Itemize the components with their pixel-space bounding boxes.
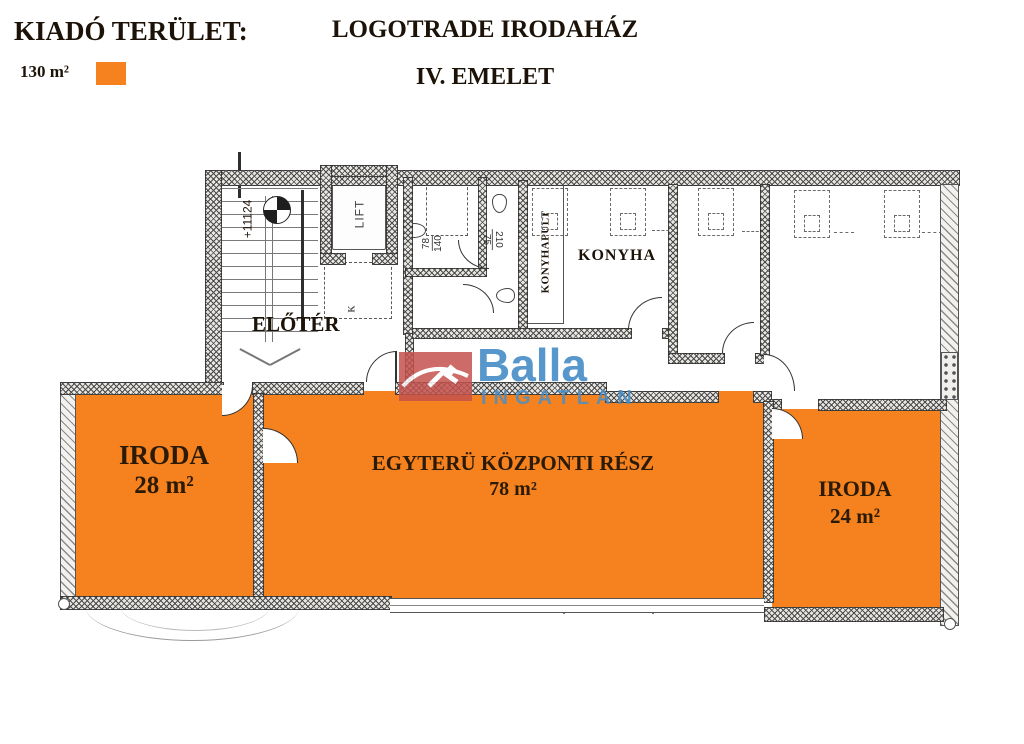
lift-label: LIFT bbox=[352, 200, 366, 229]
lift-lobby-dashed bbox=[324, 262, 392, 319]
room-label-central: EGYTERÜ KÖZPONTI RÉSZ 78 m² bbox=[298, 446, 728, 506]
wall-mid-horizontal bbox=[668, 353, 725, 364]
toilet-icon bbox=[492, 194, 507, 213]
wall-right-insulation bbox=[941, 352, 958, 400]
wall-room-divider-upper bbox=[760, 184, 770, 356]
stair-arrow bbox=[240, 348, 271, 365]
dim-value: 210 bbox=[492, 229, 504, 250]
wall-wc-horizontal bbox=[405, 268, 487, 277]
wall-stair-left bbox=[205, 170, 222, 394]
desk-icon bbox=[698, 188, 734, 236]
column-icon bbox=[58, 598, 70, 610]
level-marker-icon bbox=[263, 196, 291, 224]
stair-section-line bbox=[301, 190, 304, 330]
room-label-iroda28: IRODA 28 m² bbox=[84, 432, 244, 508]
lift-wall-right bbox=[386, 165, 398, 265]
room-area: 28 m² bbox=[134, 471, 194, 501]
furniture-dash bbox=[922, 232, 942, 233]
floor-title: IV. EMELET bbox=[285, 64, 685, 91]
lift-wall-bottom-left bbox=[320, 253, 346, 265]
dim-value: 78 bbox=[421, 236, 433, 251]
stair-mark-label: K bbox=[347, 305, 357, 312]
wc-dimensions: 78 140 bbox=[421, 235, 444, 252]
wall-orange-top-1 bbox=[60, 382, 224, 395]
closet-dashed bbox=[426, 182, 468, 236]
wall-left bbox=[60, 382, 76, 609]
wall-wc-right bbox=[518, 180, 528, 334]
brand-logo-icon bbox=[399, 352, 472, 401]
desk-icon bbox=[610, 188, 646, 236]
door-arc-kitchen bbox=[628, 297, 662, 330]
wall-kitchen-right bbox=[668, 184, 678, 364]
wall-top bbox=[205, 170, 960, 186]
door-arc-entry bbox=[366, 351, 397, 382]
wall-iroda24-top-b bbox=[818, 399, 947, 411]
room-name: IRODA bbox=[818, 475, 891, 503]
stair-arrow bbox=[270, 348, 301, 365]
wall-divider-iroda28 bbox=[253, 393, 264, 599]
window-band-bottom bbox=[390, 598, 764, 613]
door-arc-midroom bbox=[722, 322, 754, 353]
legend-title: KIADÓ TERÜLET: bbox=[14, 16, 248, 47]
house-icon bbox=[399, 352, 472, 401]
wall-kitchen-bottom bbox=[412, 328, 632, 339]
wall-wc-left bbox=[403, 177, 413, 335]
lift-car: LIFT bbox=[332, 178, 386, 250]
room-area: 78 m² bbox=[489, 477, 537, 502]
door-arc-central-right bbox=[764, 354, 795, 391]
column-icon bbox=[944, 618, 956, 630]
lift-wall-bottom-right bbox=[372, 253, 398, 265]
wall-bottom-left bbox=[60, 596, 392, 610]
dim-value: 140 bbox=[433, 235, 444, 252]
toilet-icon bbox=[496, 288, 515, 303]
lift-wall-left bbox=[320, 165, 332, 265]
legend-area-value: 130 m² bbox=[20, 62, 69, 82]
door-arc-wc2 bbox=[463, 284, 494, 313]
room-area: 24 m² bbox=[830, 503, 880, 529]
room-name: EGYTERÜ KÖZPONTI RÉSZ bbox=[372, 450, 654, 476]
brand-name: Balla bbox=[477, 342, 587, 388]
desk-icon bbox=[794, 190, 830, 238]
level-value: +11124 bbox=[240, 200, 254, 239]
furniture-dash bbox=[834, 232, 854, 233]
brand-subtitle: INGATLAN bbox=[481, 387, 639, 410]
legend-color-swatch bbox=[96, 62, 126, 85]
desk-icon bbox=[884, 190, 920, 238]
entry-label: ELŐTÉR bbox=[252, 312, 340, 337]
floorplan-page: { "legend": { "title": "KIADÓ TERÜLET:",… bbox=[0, 0, 1024, 744]
dim-value: 75 bbox=[481, 234, 492, 245]
desk-icon bbox=[532, 188, 568, 236]
wall-bottom-right bbox=[764, 607, 944, 622]
building-title: LOGOTRADE IRODAHÁZ bbox=[285, 16, 685, 44]
room-name: IRODA bbox=[119, 439, 209, 471]
wc2-dimensions: 210 75 bbox=[481, 229, 504, 250]
kitchen-label: KONYHA bbox=[578, 247, 656, 265]
room-label-iroda24: IRODA 24 m² bbox=[788, 472, 922, 532]
wall-orange-top-2 bbox=[252, 382, 364, 395]
